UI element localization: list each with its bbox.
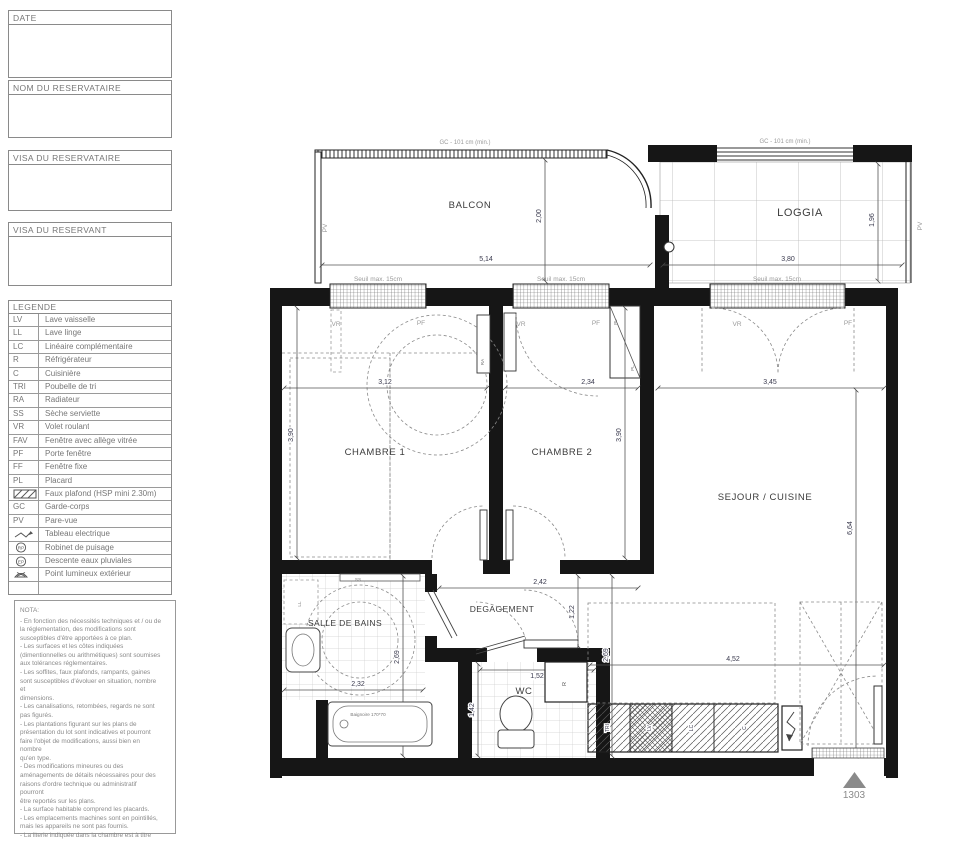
chambre1-label: CHAMBRE 1 <box>345 447 406 458</box>
dim-degagement-width: 2,42 <box>533 579 547 586</box>
kitchen-cell-lv: LV <box>647 724 653 730</box>
loggia-post-right <box>853 145 912 162</box>
chambre2-pl-label-2: PL <box>630 365 635 371</box>
sdb-towel-rail <box>340 574 420 581</box>
kitchen-cell-tri: TRI <box>605 724 611 732</box>
wall-top-3 <box>609 288 712 306</box>
sdb-bathtub <box>328 702 432 746</box>
entry-threshold <box>812 748 884 758</box>
seuil-label-2: Seuil max. 15cm <box>537 276 585 283</box>
chambre1-pf-label: PF <box>417 320 425 327</box>
lot-marker-triangle-icon <box>843 772 866 788</box>
loggia-label: LOGGIA <box>777 207 823 219</box>
floorplan-page: { "sidebar": { "boxes": [ {"label": "DAT… <box>0 0 967 800</box>
window-chambre1 <box>330 284 426 308</box>
entry-door-leaf <box>874 686 882 744</box>
kitchen-counter: TRI LV LC C <box>588 704 802 752</box>
wall-left <box>270 288 282 778</box>
wall-chambre2-sejour <box>640 306 654 560</box>
sejour-pf-label: PF <box>844 320 852 327</box>
dim-sejour-depth: 6,64 <box>847 521 854 535</box>
dim-chambre1-depth: 3,90 <box>288 428 295 442</box>
sdb-ss-label: SS <box>355 577 361 582</box>
wall-sdb-right-bottom <box>425 636 437 662</box>
dim-balcon-depth: 2,00 <box>536 209 543 223</box>
dim-kitchen-width: 4,52 <box>726 656 740 663</box>
dim-balcon-width: 5,14 <box>479 256 493 263</box>
sdb-door-leaf <box>428 590 457 638</box>
loggia-guardrail-bars <box>717 148 853 160</box>
seuil-label-3: Seuil max. 15cm <box>753 276 801 283</box>
balcon-curved-rail-inner <box>607 155 646 208</box>
chambre1-door-leaf <box>480 510 487 560</box>
wc-zone: WC 1,52 1,42 R <box>469 602 596 758</box>
wall-chambre1-chambre2 <box>489 306 503 560</box>
wc-toilet-bowl <box>500 696 532 732</box>
wall-chambres-bottom-2 <box>483 560 510 574</box>
lot-number: 1303 <box>843 790 866 800</box>
chambre1-vr-box <box>331 310 341 372</box>
electrical-panel-box <box>782 706 802 750</box>
loggia-zone: GC - 101 cm (min.) LOGGIA PV 3,80 1,96 <box>648 139 924 288</box>
chambre1-ra-label: RA <box>480 358 485 365</box>
wall-bottom-corner <box>884 758 898 776</box>
gc-label-balcon: GC - 101 cm (min.) <box>439 140 490 146</box>
fridge-niche <box>545 662 587 702</box>
balcon-zone: GC - 101 cm (min.) BALCON PV 5,14 2,00 <box>315 140 651 283</box>
wall-tub-left <box>316 700 328 758</box>
chambre2-door-leaf <box>506 510 513 560</box>
window-chambre2 <box>513 284 609 308</box>
kitchen-cell-lc: LC <box>689 724 695 731</box>
wc-label: WC <box>515 686 532 697</box>
dim-chambre1-width: 3,12 <box>378 379 392 386</box>
wall-chambres-bottom-1 <box>282 560 432 574</box>
wall-chambres-bottom-3 <box>560 560 654 574</box>
sejour-degagement-door-leaf <box>524 640 578 648</box>
dim-sejour-width: 3,45 <box>763 379 777 386</box>
chambre2-pl-label-1: PL <box>613 319 618 325</box>
fridge-r-label: R <box>562 682 568 686</box>
kitchen-counter-hatch <box>588 704 778 752</box>
dim-sdb-width: 2,32 <box>351 681 365 688</box>
kitchen-faux-plafond-outline <box>588 603 775 703</box>
wall-wc-top-2 <box>537 648 610 662</box>
chambre2-door-arc2 <box>513 506 565 558</box>
dim-loggia-width: 3,80 <box>781 256 795 263</box>
chambre2-vr-label: VR <box>516 321 525 328</box>
balcon-pv-label: PV <box>322 223 329 232</box>
dim-loggia-depth: 1,96 <box>869 213 876 227</box>
dim-chambre2-depth: 3,90 <box>616 428 623 442</box>
chambre1-vr-label: VR <box>331 321 340 328</box>
sejour-label: SEJOUR / CUISINE <box>718 492 813 503</box>
balcon-guardrail <box>315 150 607 158</box>
entry-door-arc <box>808 676 878 746</box>
sdb-label: SALLE DE BAINS <box>308 618 382 628</box>
wall-right <box>886 288 898 778</box>
wall-bottom <box>270 758 814 776</box>
sdb-sink <box>286 628 320 672</box>
chambre2-pf-label: PF <box>592 320 600 327</box>
loggia-post-left <box>648 145 717 162</box>
ep-downpipe-circle <box>664 242 674 252</box>
sejour-door-frames <box>702 308 854 372</box>
chambre2-label: CHAMBRE 2 <box>532 447 593 458</box>
windows: Seuil max. 15cm Seuil max. 15cm Seuil ma… <box>330 276 845 308</box>
balcon-curved-rail-outer <box>607 150 651 208</box>
chambre1-zone: VR PF RA CHAMBRE 1 3,12 3,90 <box>282 308 507 560</box>
window-sejour <box>710 284 845 308</box>
loggia-pv-label: PV <box>917 221 924 230</box>
wall-top-2 <box>426 288 513 306</box>
sejour-vr-label: VR <box>732 321 741 328</box>
kitchen-cell-c: C <box>742 726 748 730</box>
balcon-label: BALCON <box>449 200 492 211</box>
wc-toilet-tank <box>498 730 534 748</box>
chambre2-zone: VR PF PL PL CHAMBRE 2 2,34 3,90 <box>504 306 640 558</box>
wall-sdb-right-top <box>425 574 437 592</box>
wall-top-1 <box>270 288 332 306</box>
dim-wc-width: 1,52 <box>530 673 544 680</box>
floorplan-drawing: GC - 101 cm (min.) BALCON PV 5,14 2,00 G… <box>0 0 967 800</box>
balcon-pare-vue-left <box>315 152 321 283</box>
dim-degagement-depth: 1,22 <box>569 605 576 619</box>
dim-wc-depth: 1,42 <box>469 703 476 717</box>
sdb-bathtub-label: Baignoire 170*70 <box>350 712 386 717</box>
seuil-label-1: Seuil max. 15cm <box>354 276 402 283</box>
dim-chambre2-width: 2,34 <box>581 379 595 386</box>
sdb-zone: SS LL SALLE DE BAINS 2,32 2,69 Baignoire… <box>282 574 457 756</box>
gc-label-loggia: GC - 101 cm (min.) <box>759 139 810 145</box>
chambre2-radiator <box>504 313 516 371</box>
degagement-zone: DEGAGEMENT 2,42 1,22 <box>439 576 638 648</box>
chambre1-door-arc <box>432 506 484 558</box>
dim-sdb-depth: 2,69 <box>394 650 401 664</box>
sejour-double-door-arcs <box>712 308 844 374</box>
sdb-ll-label: LL <box>297 601 302 607</box>
chambre1-swing-circle-inner <box>387 335 487 435</box>
wall-wc-top-1 <box>437 648 487 662</box>
dim-kitchen-depth: 2,69 <box>603 648 610 662</box>
